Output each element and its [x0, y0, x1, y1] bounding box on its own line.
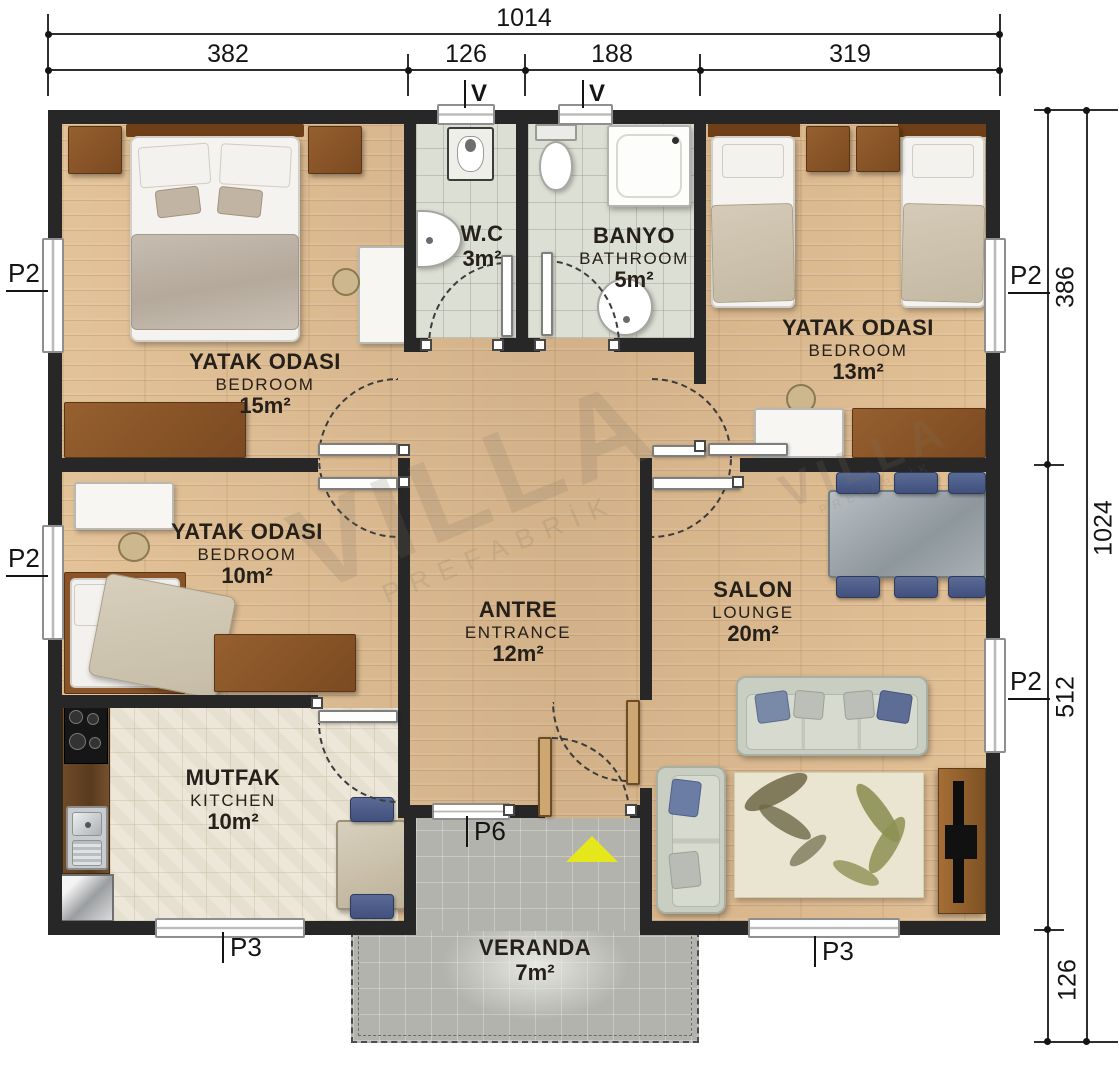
desk — [74, 482, 174, 530]
room-name-tr: SALON — [712, 578, 793, 603]
wall-bed15-south — [48, 458, 318, 472]
door-leaf-banyo — [541, 252, 553, 336]
dim-tick — [1044, 926, 1051, 933]
dim-line — [1086, 110, 1088, 1042]
dim-total-height: 1024 — [1090, 500, 1119, 556]
chair — [836, 472, 880, 494]
sofa — [736, 676, 928, 756]
door-jamb — [625, 804, 637, 816]
chair — [948, 576, 986, 598]
dim-extension — [699, 54, 701, 96]
tv-unit — [938, 768, 986, 914]
dim-tick — [1083, 107, 1090, 114]
pillow — [219, 143, 292, 188]
faucet-icon — [426, 237, 433, 244]
wall-salon-west — [640, 458, 652, 700]
dim-line — [48, 33, 1000, 35]
dim-extension — [999, 14, 1001, 96]
rug-plant-motif — [755, 798, 815, 845]
sink-drainboard — [72, 840, 102, 866]
door-jamb — [534, 339, 546, 351]
tag-p3-window: P3 — [222, 932, 262, 963]
room-name-tr: ANTRE — [465, 598, 571, 623]
room-area: 13m² — [782, 360, 934, 385]
wall-right — [986, 353, 1000, 638]
dim-segment: 188 — [591, 40, 633, 69]
dim-tick — [45, 31, 52, 38]
tag-p2-window: P2 — [6, 543, 48, 577]
dim-tick — [697, 67, 704, 74]
burner — [69, 733, 86, 750]
dim-segment: 126 — [445, 40, 487, 69]
shower-inner — [616, 134, 682, 198]
wall-bottom — [900, 921, 1000, 935]
tag-p3-window: P3 — [814, 936, 854, 967]
wall-kitchen-north — [48, 695, 318, 708]
wall-top — [48, 110, 437, 124]
pillow — [722, 144, 784, 178]
wall-top — [495, 110, 558, 124]
dim-segment: 319 — [829, 40, 871, 69]
door-leaf-bedroom13 — [708, 443, 788, 456]
room-label-bedroom10: YATAK ODASI BEDROOM 10m² — [171, 520, 323, 588]
door-leaf-passage — [652, 477, 740, 490]
faucet-icon — [623, 316, 630, 323]
chair — [350, 894, 394, 919]
wall-bottom — [48, 921, 155, 935]
floor-plan: VILLA PREFABRİK VILLA PREFABRİK YATAK OD… — [0, 0, 1119, 1080]
room-area: 3m² — [460, 247, 503, 272]
wall-bath-south — [614, 338, 706, 352]
window-p3 — [748, 918, 900, 938]
door-leaf-bedroom15 — [318, 443, 398, 456]
room-name-tr: YATAK ODASI — [171, 520, 323, 545]
door-jamb — [492, 339, 504, 351]
room-name-tr: YATAK ODASI — [189, 350, 341, 375]
squat-toilet — [447, 127, 494, 181]
room-label-wc: W.C 3m² — [460, 222, 503, 271]
dim-tick — [996, 67, 1003, 74]
door-leaf-kitchen — [318, 710, 398, 723]
room-label-banyo: BANYO BATHROOM 5m² — [579, 224, 689, 292]
dim-tick — [1044, 107, 1051, 114]
room-label-mutfak: MUTFAK KITCHEN 10m² — [186, 766, 281, 834]
tag-v-vent: V — [464, 80, 487, 108]
dresser — [214, 634, 356, 692]
door-jamb — [311, 697, 323, 709]
entrance-arrow-icon — [566, 836, 618, 862]
room-name-en: BATHROOM — [579, 249, 689, 268]
door-leaf-salon — [626, 700, 640, 785]
room-area: 10m² — [171, 564, 323, 589]
door-leaf-entrance — [538, 737, 552, 817]
shower-tray — [607, 125, 691, 207]
nightstand — [308, 126, 362, 174]
door-jamb — [398, 476, 410, 488]
dim-tick — [996, 31, 1003, 38]
pillow — [138, 143, 212, 189]
accent-pillow — [217, 186, 264, 218]
dining-table — [828, 490, 986, 578]
dim-tick — [522, 67, 529, 74]
burner — [69, 710, 83, 724]
stove-icon — [64, 704, 108, 764]
sofa-pillow-gray — [843, 690, 875, 721]
double-bed — [126, 124, 304, 345]
kitchen-sink — [66, 806, 108, 870]
squat-drain — [465, 139, 476, 152]
room-name-tr: YATAK ODASI — [782, 316, 934, 341]
door-jamb — [420, 339, 432, 351]
sofa-pillow-gray — [793, 690, 825, 721]
burner — [89, 737, 101, 749]
room-area: 15m² — [189, 394, 341, 419]
accent-pillow — [154, 185, 201, 218]
bed-blanket — [711, 203, 796, 303]
chair — [894, 576, 938, 598]
dim-total-width: 1014 — [496, 4, 552, 33]
room-label-antre: ANTRE ENTRANCE 12m² — [465, 598, 571, 666]
shower-drain — [672, 137, 679, 144]
room-name-en: BEDROOM — [782, 341, 934, 360]
dim-tick — [1044, 461, 1051, 468]
room-label-salon: SALON LOUNGE 20m² — [712, 578, 793, 646]
dim-extension — [47, 14, 49, 96]
room-area: 20m² — [712, 622, 793, 647]
tag-p6-window: P6 — [466, 816, 506, 847]
wall-left — [48, 353, 62, 525]
door-jamb — [398, 444, 410, 456]
loveseat — [656, 766, 726, 914]
room-name-tr: VERANDA — [479, 936, 591, 961]
door-jamb — [608, 339, 620, 351]
wall-left — [48, 110, 62, 238]
tag-p2-window: P2 — [1008, 260, 1050, 294]
sofa-pillow-blue — [754, 690, 791, 724]
door-jamb — [732, 476, 744, 488]
wall-right — [986, 110, 1000, 238]
bed-blanket — [901, 203, 986, 303]
tv-icon — [945, 825, 977, 859]
dim-line — [1047, 110, 1049, 1042]
dim-tick — [45, 67, 52, 74]
fridge — [60, 874, 114, 922]
toilet-bowl — [539, 141, 573, 191]
sofa-pillow-blue — [876, 690, 913, 725]
dim-tick — [405, 67, 412, 74]
room-name-tr: W.C — [460, 222, 503, 247]
single-bed — [898, 124, 990, 310]
bed-blanket — [131, 234, 299, 330]
nightstand — [856, 126, 900, 172]
dim-extension — [407, 54, 409, 96]
nightstand — [68, 126, 122, 174]
door-jamb — [503, 804, 515, 816]
window-p2 — [984, 638, 1006, 753]
room-name-en: KITCHEN — [186, 791, 281, 810]
dim-segment: 386 — [1052, 266, 1081, 308]
wall-hall-west — [398, 458, 410, 805]
loveseat-pillow-gray — [668, 851, 702, 890]
tag-p2-window: P2 — [6, 258, 48, 292]
vanity-stool — [332, 268, 360, 296]
burner — [87, 713, 99, 725]
room-name-en: ENTRANCE — [465, 623, 571, 642]
door-jamb — [694, 440, 706, 452]
wall-entry — [398, 805, 432, 818]
tag-v-vent: V — [582, 80, 605, 108]
toilet-tank — [535, 124, 577, 141]
dim-segment: 382 — [207, 40, 249, 69]
dim-segment: 512 — [1052, 676, 1081, 718]
room-name-en: BEDROOM — [171, 545, 323, 564]
dim-tick — [1044, 1038, 1051, 1045]
nightstand — [806, 126, 850, 172]
wall-bottom — [305, 921, 416, 935]
room-label-veranda: VERANDA 7m² — [479, 936, 591, 985]
wall-left — [48, 640, 62, 935]
room-area: 12m² — [465, 642, 571, 667]
tag-p2-window: P2 — [1008, 666, 1050, 700]
room-area: 10m² — [186, 810, 281, 835]
pillow — [912, 144, 974, 178]
wall-salon-west — [640, 788, 652, 921]
dresser — [852, 408, 986, 458]
wall-bed13-south — [740, 458, 986, 472]
desk-chair — [118, 532, 150, 562]
wall-top — [613, 110, 1000, 124]
loveseat-pillow-blue — [668, 778, 702, 817]
chair — [836, 576, 880, 598]
room-label-bedroom13: YATAK ODASI BEDROOM 13m² — [782, 316, 934, 384]
dim-extension — [524, 54, 526, 96]
wall-wc-banyo — [516, 124, 528, 352]
window-p2 — [42, 238, 64, 353]
window-p2 — [984, 238, 1006, 353]
single-bed — [708, 124, 800, 310]
wall-bed15-wc — [404, 124, 416, 352]
room-area: 7m² — [479, 961, 591, 986]
room-name-tr: BANYO — [579, 224, 689, 249]
faucet-icon — [85, 822, 91, 828]
door-leaf-bedroom10 — [318, 477, 398, 490]
rug — [734, 772, 924, 898]
room-label-bedroom15: YATAK ODASI BEDROOM 15m² — [189, 350, 341, 418]
wall-bottom — [640, 921, 748, 935]
chair — [894, 472, 938, 494]
wall-right — [986, 753, 1000, 935]
vanity-table — [358, 246, 406, 344]
room-name-en: BEDROOM — [189, 375, 341, 394]
dim-segment: 126 — [1054, 959, 1083, 1001]
wall-veranda-left — [404, 818, 416, 935]
room-area: 5m² — [579, 268, 689, 293]
room-name-tr: MUTFAK — [186, 766, 281, 791]
room-name-en: LOUNGE — [712, 603, 793, 622]
dim-tick — [1083, 1038, 1090, 1045]
chair — [948, 472, 986, 494]
